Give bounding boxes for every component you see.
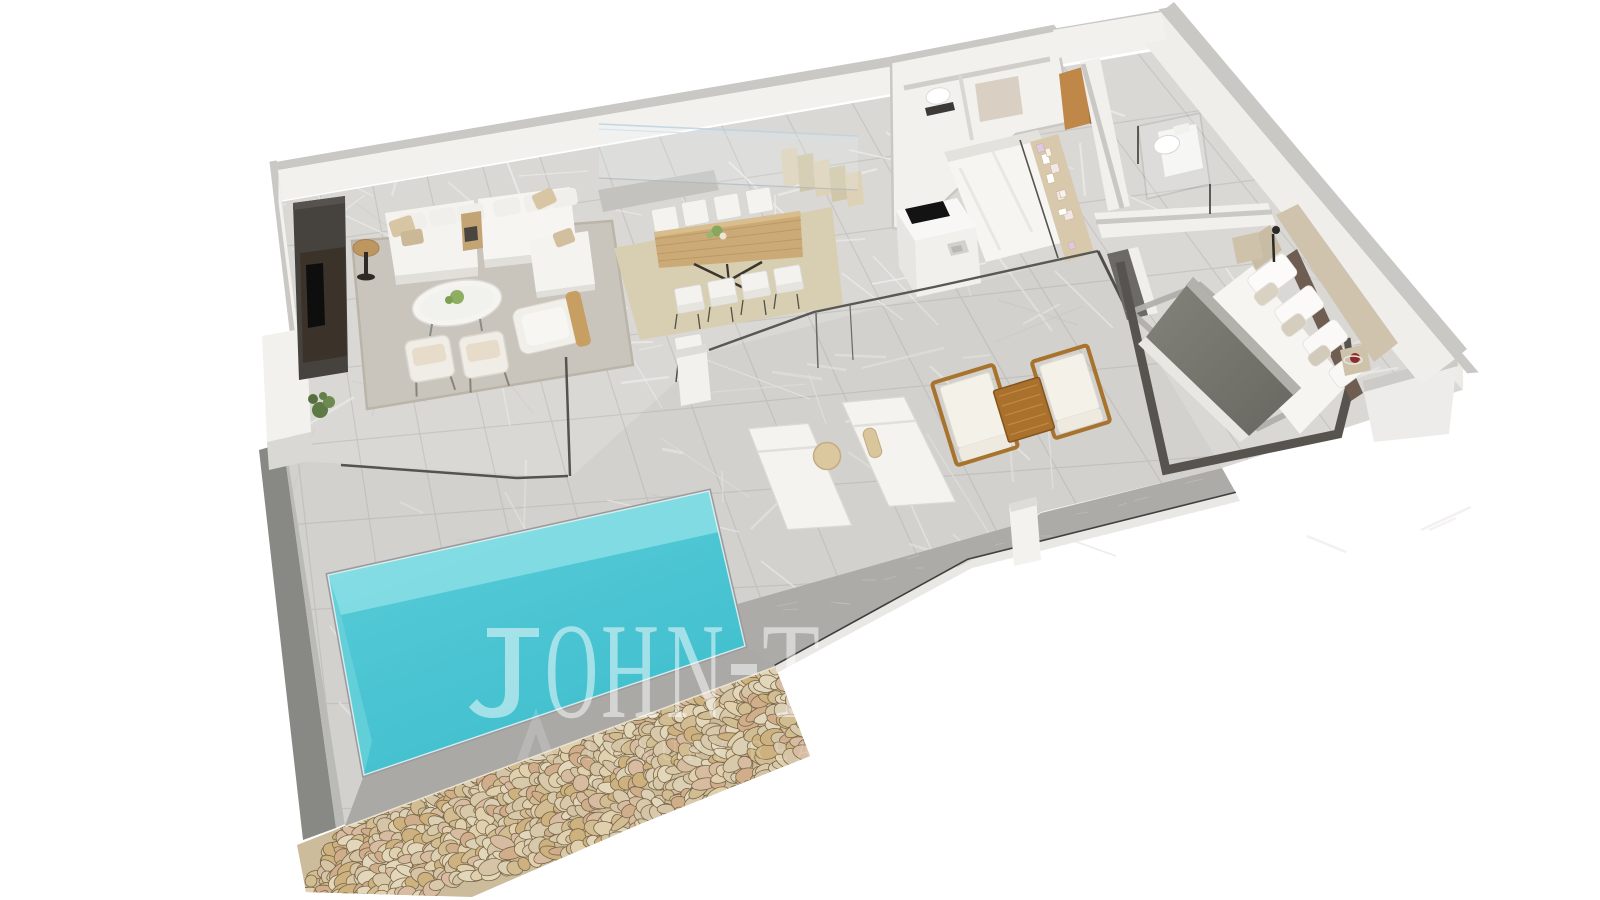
- svg-text:LUXURY REAL: LUXURY REAL: [585, 736, 845, 767]
- svg-text:T: T: [762, 595, 820, 747]
- svg-text:H: H: [601, 595, 659, 747]
- svg-text:N: N: [666, 595, 724, 747]
- svg-text:O: O: [545, 595, 598, 747]
